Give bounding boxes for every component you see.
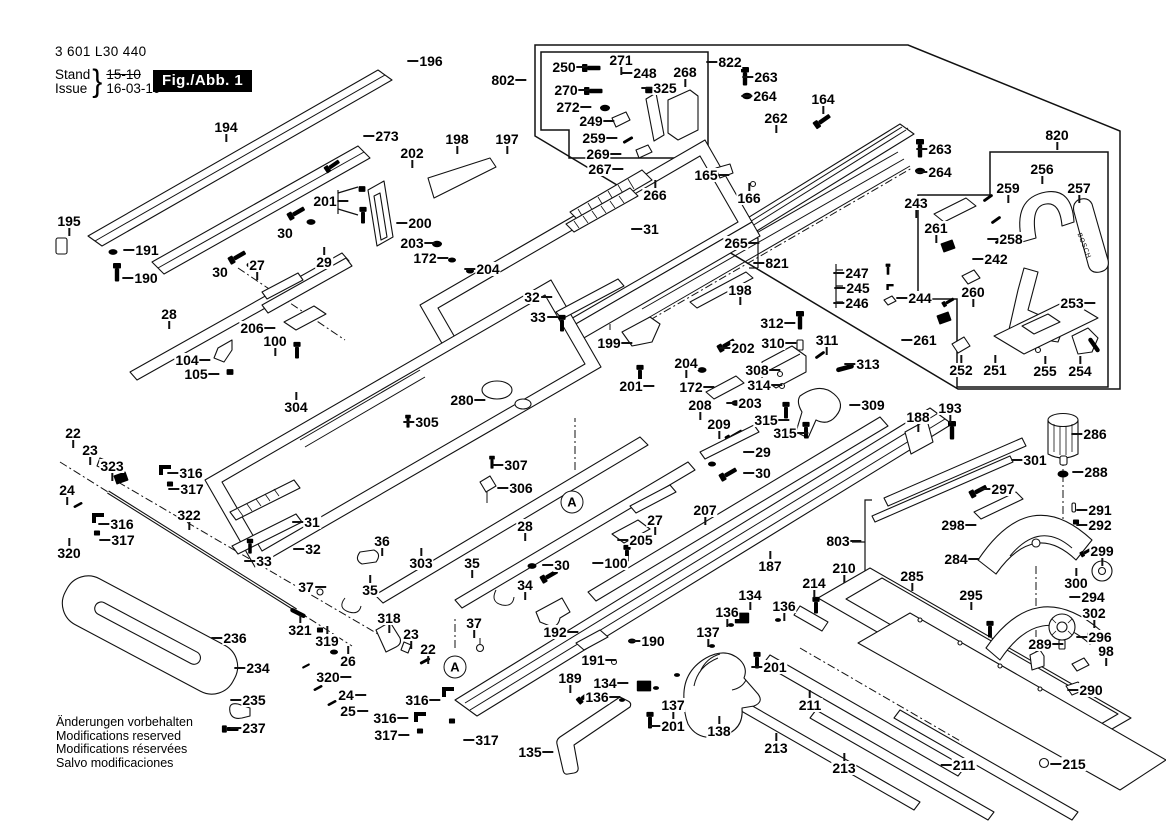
part-label: 35: [361, 583, 379, 597]
part-label: 211: [798, 698, 823, 712]
part-label: 249: [578, 114, 603, 128]
part-label: 195: [56, 214, 81, 228]
part-label: 207: [692, 503, 717, 517]
part-label: 247: [844, 266, 869, 280]
figure-badge: Fig./Abb. 1: [153, 70, 252, 92]
footer-line-es: Salvo modificaciones: [56, 757, 193, 771]
part-label: 316: [109, 517, 134, 531]
part-label: 325: [652, 81, 677, 95]
part-label: 213: [763, 741, 788, 755]
part-label: 264: [752, 89, 777, 103]
footer-line-fr: Modifications réservées: [56, 743, 193, 757]
part-label: 194: [213, 120, 238, 134]
part-label: 289: [1027, 637, 1052, 651]
part-label: 137: [695, 625, 720, 639]
part-label: 191: [580, 653, 605, 667]
part-label: 272: [555, 100, 580, 114]
part-label: 32: [523, 290, 541, 304]
part-label: 259: [581, 131, 606, 145]
part-label: 100: [262, 334, 287, 348]
part-label: 321: [287, 623, 312, 637]
part-label: 316: [372, 711, 397, 725]
brace-glyph: }: [92, 64, 102, 100]
part-label: 251: [982, 363, 1007, 377]
part-label: 28: [160, 307, 178, 321]
part-label: 253: [1059, 296, 1084, 310]
part-label: 821: [764, 256, 789, 270]
part-label: 193: [937, 401, 962, 415]
part-label: 284: [943, 552, 968, 566]
part-label: 311: [815, 333, 840, 347]
part-label: 296: [1087, 630, 1112, 644]
part-label: 323: [99, 459, 124, 473]
part-label: 245: [845, 281, 870, 295]
part-label: 24: [337, 688, 355, 702]
part-label: 255: [1032, 364, 1057, 378]
part-label: 203: [399, 236, 424, 250]
part-label: 295: [958, 588, 983, 602]
part-label: 307: [503, 458, 528, 472]
part-label: 204: [475, 262, 500, 276]
part-label: 308: [744, 363, 769, 377]
part-label: 136: [771, 599, 796, 613]
part-label: 98: [1097, 644, 1115, 658]
footer-line-en: Modifications reserved: [56, 730, 193, 744]
part-label: 235: [241, 693, 266, 707]
part-label: 206: [239, 321, 264, 335]
part-label: 244: [907, 291, 932, 305]
part-label: 259: [995, 181, 1020, 195]
part-label: 237: [241, 721, 266, 735]
part-label: 267: [587, 162, 612, 176]
part-label: 213: [831, 761, 856, 775]
part-label: 256: [1029, 162, 1054, 176]
part-label: 199: [596, 336, 621, 350]
part-label: 319: [314, 634, 339, 648]
part-label: 254: [1067, 364, 1092, 378]
part-label: 192: [542, 625, 567, 639]
part-label: 322: [176, 508, 201, 522]
part-label: 30: [553, 558, 571, 572]
part-label: 202: [730, 341, 755, 355]
part-label: 201: [312, 194, 337, 208]
part-label: 292: [1087, 518, 1112, 532]
part-label: 262: [763, 111, 788, 125]
part-label: 303: [408, 556, 433, 570]
part-label: 294: [1080, 590, 1105, 604]
part-label: 201: [762, 660, 787, 674]
part-label: 260: [960, 285, 985, 299]
part-label: 203: [737, 396, 762, 410]
part-label: 204: [673, 356, 698, 370]
part-label: 33: [255, 554, 273, 568]
part-label: 36: [373, 534, 391, 548]
part-label: 201: [618, 379, 643, 393]
part-label: 820: [1044, 128, 1069, 142]
part-label: 317: [373, 728, 398, 742]
part-label: 202: [399, 146, 424, 160]
part-label: 210: [831, 561, 856, 575]
part-label: 188: [905, 410, 930, 424]
part-label: 32: [304, 542, 322, 556]
part-label: 317: [474, 733, 499, 747]
part-label: 23: [81, 443, 99, 457]
part-label: 265: [723, 236, 748, 250]
part-label: 136: [584, 690, 609, 704]
part-label: 316: [404, 693, 429, 707]
fence-clamp-group: [934, 192, 1108, 354]
part-label: 104: [174, 353, 199, 367]
part-label: 261: [912, 333, 937, 347]
part-label: 31: [303, 515, 321, 529]
part-label: 22: [419, 642, 437, 656]
part-label: 201: [660, 719, 685, 733]
part-number: 3 601 L30 440: [55, 44, 160, 59]
part-label: 187: [757, 559, 782, 573]
part-label: 196: [418, 54, 443, 68]
part-label: 318: [376, 611, 401, 625]
part-label: 317: [110, 533, 135, 547]
part-label: 822: [717, 55, 742, 69]
part-label: 24: [58, 483, 76, 497]
part-label: 298: [940, 518, 965, 532]
footer-line-de: Änderungen vorbehalten: [56, 716, 193, 730]
part-label: 803: [825, 534, 850, 548]
part-label: 35: [463, 556, 481, 570]
part-label: 135: [517, 745, 542, 759]
part-label: 314: [746, 378, 771, 392]
part-label: 37: [465, 616, 483, 630]
part-label: 100: [603, 556, 628, 570]
part-label: 290: [1078, 683, 1103, 697]
stand-label: Stand: [55, 68, 90, 82]
part-label: 198: [727, 283, 752, 297]
part-label: 300: [1063, 576, 1088, 590]
part-label: 299: [1089, 544, 1114, 558]
part-label: 138: [706, 724, 731, 738]
footer-notes: Änderungen vorbehalten Modifications res…: [56, 716, 193, 770]
part-label: 29: [315, 255, 333, 269]
part-label: 288: [1083, 465, 1108, 479]
part-label: 286: [1082, 427, 1107, 441]
part-label: 209: [706, 417, 731, 431]
detail-marker: A: [444, 656, 467, 679]
part-label: 246: [844, 296, 869, 310]
part-label: 33: [529, 310, 547, 324]
part-label: 304: [283, 400, 308, 414]
part-label: 134: [592, 676, 617, 690]
part-label: 23: [402, 627, 420, 641]
part-label: 190: [133, 271, 158, 285]
part-label: 105: [183, 367, 208, 381]
part-label: 190: [640, 634, 665, 648]
part-label: 234: [245, 661, 270, 675]
part-label: 191: [134, 243, 159, 257]
part-label: 26: [339, 654, 357, 668]
part-label: 215: [1061, 757, 1086, 771]
part-label: 172: [678, 380, 703, 394]
part-label: 30: [754, 466, 772, 480]
part-label: 266: [642, 188, 667, 202]
part-label: 261: [923, 221, 948, 235]
part-label: 315: [772, 426, 797, 440]
part-label: 248: [632, 66, 657, 80]
part-label: 280: [449, 393, 474, 407]
part-label: 30: [211, 265, 229, 279]
part-label: 320: [56, 546, 81, 560]
part-label: 271: [608, 53, 633, 67]
header-block: 3 601 L30 440 Stand Issue } 15-10 16-03-…: [55, 44, 160, 99]
insert-plate-group: [54, 567, 250, 732]
part-label: 316: [178, 466, 203, 480]
part-label: 302: [1081, 606, 1106, 620]
part-label: 172: [412, 251, 437, 265]
part-label: 306: [508, 481, 533, 495]
part-label: 198: [444, 132, 469, 146]
parts-diagram-page: 3 601 L30 440 Stand Issue } 15-10 16-03-…: [0, 0, 1166, 824]
part-label: 269: [585, 147, 610, 161]
part-label: 27: [248, 258, 266, 272]
detail-marker: A: [561, 491, 584, 514]
part-label: 137: [660, 698, 685, 712]
part-label: 285: [899, 569, 924, 583]
part-label: 291: [1087, 503, 1112, 517]
part-label: 208: [687, 398, 712, 412]
issue-label: Issue: [55, 82, 90, 96]
part-label: 252: [948, 363, 973, 377]
part-label: 30: [276, 226, 294, 240]
part-label: 264: [927, 165, 952, 179]
part-label: 313: [855, 357, 880, 371]
part-label: 320: [315, 670, 340, 684]
part-label: 134: [737, 588, 762, 602]
part-label: 268: [672, 65, 697, 79]
part-label: 802: [490, 73, 515, 87]
part-label: 165: [693, 168, 718, 182]
part-label: 297: [990, 482, 1015, 496]
part-label: 263: [753, 70, 778, 84]
part-label: 205: [628, 533, 653, 547]
part-label: 25: [339, 704, 357, 718]
part-label: 305: [414, 415, 439, 429]
part-label: 37: [297, 580, 315, 594]
part-label: 164: [810, 92, 835, 106]
part-label: 263: [927, 142, 952, 156]
part-label: 31: [642, 222, 660, 236]
part-label: 273: [374, 129, 399, 143]
part-label: 310: [760, 336, 785, 350]
part-label: 250: [551, 60, 576, 74]
part-label: 34: [516, 578, 534, 592]
part-label: 309: [860, 398, 885, 412]
part-label: 312: [759, 316, 784, 330]
part-label: 29: [754, 445, 772, 459]
part-label: 136: [714, 605, 739, 619]
part-label: 28: [516, 519, 534, 533]
part-label: 236: [222, 631, 247, 645]
part-label: 243: [903, 196, 928, 210]
part-label: 166: [736, 191, 761, 205]
part-label: 189: [557, 671, 582, 685]
part-label: 242: [983, 252, 1008, 266]
part-label: 27: [646, 513, 664, 527]
part-label: 214: [801, 576, 826, 590]
part-label: 257: [1066, 181, 1091, 195]
part-label: 317: [179, 482, 204, 496]
part-label: 301: [1022, 453, 1047, 467]
part-label: 211: [952, 758, 977, 772]
part-label: 270: [553, 83, 578, 97]
part-label: 200: [407, 216, 432, 230]
part-label: 258: [998, 232, 1023, 246]
part-label: 22: [64, 426, 82, 440]
part-label: 197: [494, 132, 519, 146]
